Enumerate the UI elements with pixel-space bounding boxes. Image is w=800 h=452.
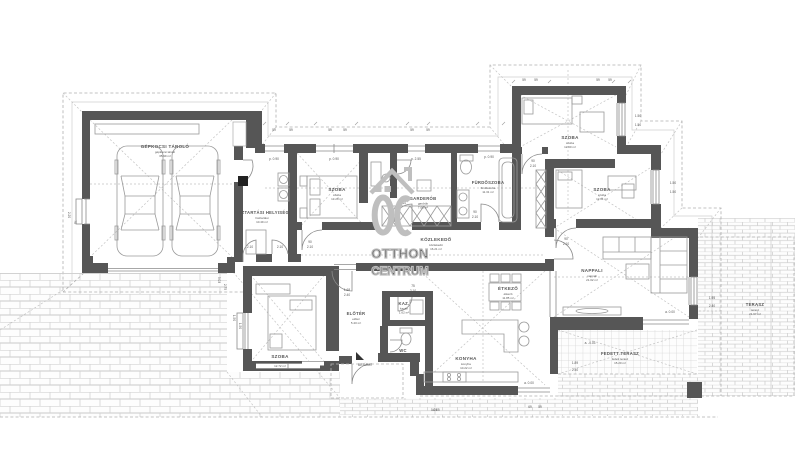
svg-text:90: 90 (531, 159, 535, 163)
svg-text:2.40: 2.40 (709, 304, 715, 308)
svg-text:1.50: 1.50 (232, 315, 236, 321)
svg-text:12.61 m²: 12.61 m² (596, 197, 608, 201)
svg-text:TERASZ: TERASZ (746, 302, 765, 307)
svg-text:FÜRDŐSZOBA: FÜRDŐSZOBA (472, 180, 505, 185)
svg-text:12.60 m²: 12.60 m² (564, 145, 576, 149)
svg-text:ÉTKEZŐ: ÉTKEZŐ (498, 284, 518, 291)
svg-text:ELŐTÉR: ELŐTÉR (347, 311, 366, 316)
svg-text:2.10: 2.10 (472, 215, 478, 219)
svg-text:0.05: 0.05 (431, 408, 437, 412)
svg-text:a. -0.03: a. -0.03 (585, 341, 596, 345)
svg-text:21.02 m²: 21.02 m² (586, 278, 598, 282)
svg-text:2.40: 2.40 (572, 368, 578, 372)
svg-text:59: 59 (289, 128, 293, 132)
svg-text:12.72 m²: 12.72 m² (274, 364, 286, 368)
svg-text:1.68: 1.68 (344, 288, 350, 292)
svg-text:2.40: 2.40 (344, 293, 350, 297)
svg-text:59: 59 (538, 405, 542, 409)
svg-text:59: 59 (272, 128, 276, 132)
svg-text:2.10: 2.10 (277, 245, 283, 249)
svg-text:1.62 m²: 1.62 m² (399, 311, 409, 315)
svg-text:16.21 m²: 16.21 m² (430, 247, 442, 251)
svg-text:FEDETT TERASZ: FEDETT TERASZ (601, 351, 639, 356)
svg-text:HÁZTARTÁSI HELYISÉG: HÁZTARTÁSI HELYISÉG (235, 210, 289, 215)
svg-text:59: 59 (328, 128, 332, 132)
svg-text:KAZ.: KAZ. (399, 301, 410, 306)
svg-text:59: 59 (410, 128, 414, 132)
svg-text:2.10: 2.10 (410, 289, 416, 293)
svg-text:KÖZLEKEDŐ: KÖZLEKEDŐ (421, 236, 452, 242)
svg-text:90: 90 (564, 237, 568, 241)
svg-text:13.26 m²: 13.26 m² (331, 197, 343, 201)
svg-text:SZOBA: SZOBA (328, 187, 346, 192)
svg-text:1.95: 1.95 (709, 296, 715, 300)
svg-text:70: 70 (73, 220, 77, 224)
svg-text:2.20: 2.20 (67, 212, 71, 218)
svg-text:59: 59 (534, 78, 538, 82)
svg-text:90: 90 (473, 210, 477, 214)
svg-text:1.50: 1.50 (238, 323, 242, 329)
svg-text:p. 0.90: p. 0.90 (484, 155, 494, 159)
svg-text:p. 0.90: p. 0.90 (269, 157, 279, 161)
svg-text:5.40 m²: 5.40 m² (351, 321, 361, 325)
svg-text:SZOBA: SZOBA (561, 135, 579, 140)
svg-text:1.50: 1.50 (635, 114, 641, 118)
svg-text:1.50: 1.50 (670, 190, 676, 194)
svg-text:NAPPALI: NAPPALI (581, 268, 603, 273)
svg-text:10.22 m²: 10.22 m² (460, 366, 472, 370)
svg-text:2.10: 2.10 (307, 245, 313, 249)
svg-text:SZOBA: SZOBA (593, 187, 611, 192)
svg-text:10.49 m²: 10.49 m² (256, 220, 268, 224)
svg-text:59: 59 (596, 78, 600, 82)
svg-text:5.03: 5.03 (217, 277, 221, 283)
svg-text:WC: WC (399, 348, 407, 353)
svg-text:SZOBA: SZOBA (271, 354, 289, 359)
svg-text:2.10: 2.10 (563, 242, 569, 246)
svg-text:35.99 m²: 35.99 m² (159, 154, 171, 158)
svg-text:a. 0.00: a. 0.00 (665, 310, 675, 314)
svg-text:GÉPKOCSI TÁROLÓ: GÉPKOCSI TÁROLÓ (141, 142, 190, 149)
svg-text:90: 90 (308, 240, 312, 244)
svg-text:GARDERÓB: GARDERÓB (410, 196, 437, 201)
svg-text:p. 2.55: p. 2.55 (411, 157, 421, 161)
svg-text:69: 69 (528, 405, 532, 409)
svg-text:2.10: 2.10 (530, 164, 536, 168)
svg-text:1.50: 1.50 (635, 123, 641, 127)
svg-text:OTTHON: OTTHON (371, 246, 428, 261)
svg-text:75: 75 (411, 284, 415, 288)
svg-text:2.75: 2.75 (223, 284, 227, 290)
svg-text:15.20 m²: 15.20 m² (614, 361, 626, 365)
svg-text:CENTRUM: CENTRUM (371, 266, 429, 278)
svg-text:59: 59 (522, 78, 526, 82)
svg-text:1.89: 1.89 (572, 361, 578, 365)
svg-text:a. 0.00: a. 0.00 (524, 381, 534, 385)
svg-text:7.06 m²: 7.06 m² (418, 206, 428, 210)
svg-text:p. 0.90: p. 0.90 (329, 157, 339, 161)
svg-text:11.85 m²: 11.85 m² (502, 296, 514, 300)
svg-text:59: 59 (426, 128, 430, 132)
svg-text:KONYHA: KONYHA (455, 356, 477, 361)
svg-text:21.67 m²: 21.67 m² (749, 312, 761, 316)
svg-text:BEJÁRAT: BEJÁRAT (358, 363, 372, 367)
svg-text:1.50: 1.50 (670, 181, 676, 185)
svg-text:59: 59 (343, 128, 347, 132)
svg-text:59: 59 (608, 78, 612, 82)
svg-text:11.31 m²: 11.31 m² (482, 190, 494, 194)
svg-text:2.10: 2.10 (247, 245, 253, 249)
